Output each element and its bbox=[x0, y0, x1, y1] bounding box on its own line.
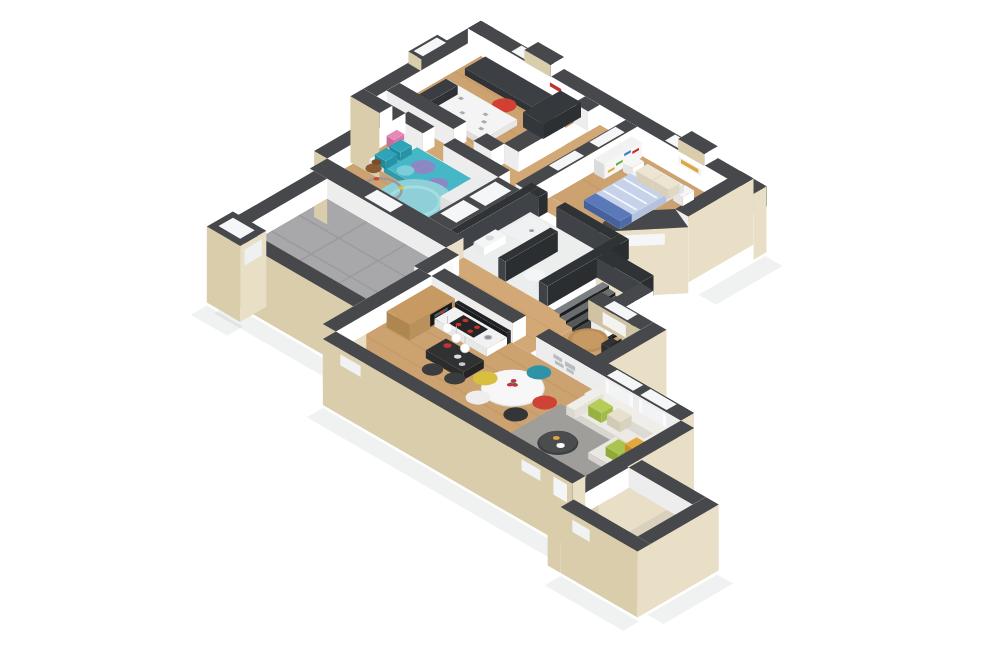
floor-plan-render: 3D isometric floor plan rendering of a s… bbox=[0, 0, 1004, 669]
floor-plan-svg bbox=[0, 0, 1004, 669]
